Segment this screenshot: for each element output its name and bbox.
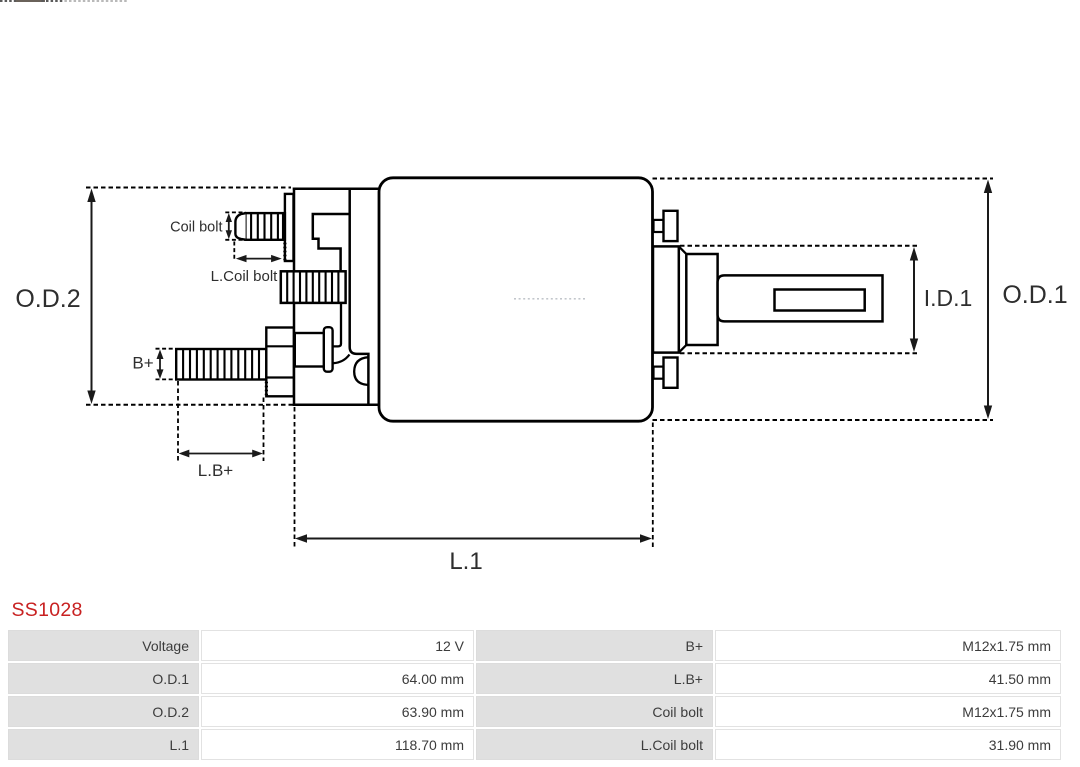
svg-text:L.Coil bolt: L.Coil bolt: [211, 268, 279, 285]
svg-text:I.D.1: I.D.1: [924, 285, 973, 311]
svg-text:O.D.2: O.D.2: [15, 285, 80, 313]
svg-text:Coil bolt: Coil bolt: [170, 220, 222, 236]
svg-text:O.D.1: O.D.1: [1002, 281, 1067, 309]
svg-text:L.B+: L.B+: [198, 461, 234, 480]
svg-text:L.1: L.1: [449, 548, 482, 575]
svg-text:B+: B+: [132, 354, 153, 373]
